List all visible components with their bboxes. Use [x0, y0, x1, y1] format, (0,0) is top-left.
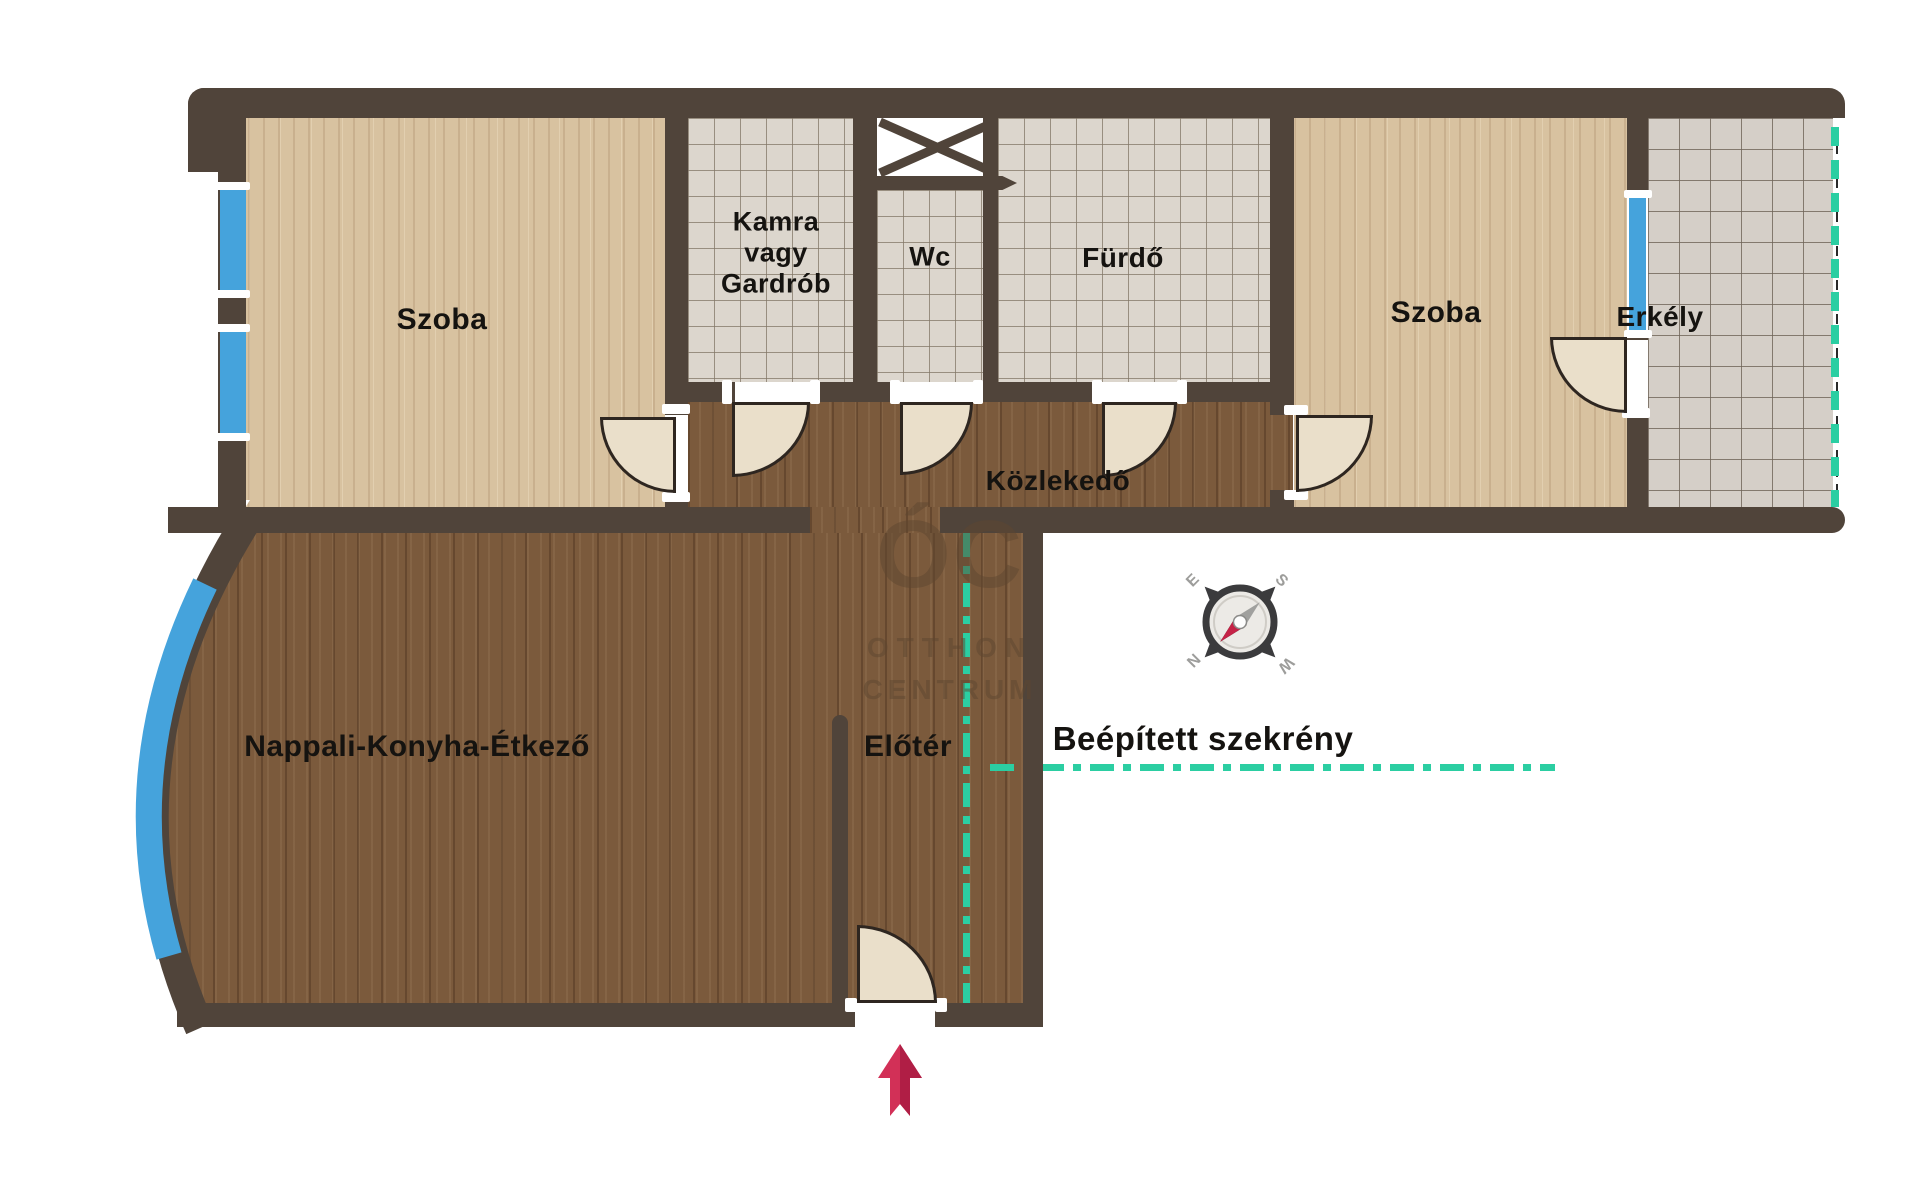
wall-left — [218, 118, 246, 510]
door-jamb — [722, 380, 732, 404]
erkely-railing — [1831, 127, 1839, 507]
window-sill — [214, 433, 250, 441]
window-sill — [214, 290, 250, 298]
label-kozlekedo: Közlekedő — [986, 465, 1131, 497]
wall-furdo-szobaR — [1270, 118, 1294, 415]
door-jamb — [1284, 405, 1308, 415]
wall-nappali-eloter — [832, 715, 848, 1003]
wall-main-right — [940, 507, 1845, 533]
compass-n: N — [1184, 651, 1204, 671]
label-szoba-right: Szoba — [1391, 296, 1482, 330]
window-sill — [1624, 190, 1652, 198]
door-jamb — [845, 998, 857, 1012]
wall-top — [188, 88, 1845, 118]
wall-hall-b — [810, 382, 900, 402]
curved-wall — [40, 480, 300, 1060]
shaft-bar — [855, 176, 1017, 190]
label-furdo: Fürdő — [1082, 242, 1164, 274]
label-kamra-line3: Gardrób — [721, 269, 831, 299]
wall-bottom-a — [177, 1003, 855, 1027]
wall-hall-c — [975, 382, 1102, 402]
door-jamb — [810, 380, 820, 404]
wall-hall-d — [1177, 382, 1294, 402]
watermark-centrum: CENTRUM — [863, 674, 1038, 706]
label-wc: Wc — [909, 242, 951, 273]
wall-szobaR-erkely-bottom — [1627, 413, 1648, 507]
wall-wc-furdo — [983, 118, 998, 382]
wardrobe-line-horizontal — [990, 764, 1555, 771]
wall-kamra-wc — [853, 118, 877, 382]
compass-icon: S N E W — [1175, 557, 1305, 687]
watermark-otthon: OTTHON — [867, 632, 1033, 664]
wall-main-left — [168, 507, 810, 533]
label-erkely: Erkély — [1616, 301, 1703, 333]
room-wc-floor — [877, 190, 983, 382]
door-jamb — [662, 404, 690, 414]
wall-eloter-right — [1023, 525, 1043, 1027]
wall-bottom-b — [935, 1003, 1043, 1027]
shaft-x-icon — [877, 118, 998, 177]
label-eloter: Előtér — [864, 730, 952, 764]
door-jamb — [1092, 380, 1102, 404]
label-nappali: Nappali-Konyha-Étkező — [244, 730, 590, 764]
shaft-box — [877, 118, 998, 177]
door-jamb — [973, 380, 983, 404]
compass-e: E — [1183, 571, 1203, 591]
compass-w: W — [1274, 653, 1297, 676]
floor-plan: Szoba Kamra vagy Gardrób Wc Fürdő Szoba … — [0, 0, 1920, 1180]
wall-szobaL-kamra — [665, 118, 688, 415]
label-szoba-left: Szoba — [397, 303, 488, 337]
entrance-arrow-icon — [872, 1042, 928, 1118]
label-kamra-line1: Kamra — [733, 207, 820, 237]
door-jamb — [890, 380, 900, 404]
door-jamb — [662, 492, 690, 502]
door-jamb — [1177, 380, 1187, 404]
label-kamra: Kamra vagy Gardrób — [721, 207, 831, 300]
window-sill — [214, 324, 250, 332]
label-kamra-line2: vagy — [744, 238, 808, 268]
window-szobaL-2 — [220, 332, 246, 433]
window-szobaL-1 — [220, 190, 246, 290]
wall-szobaR-erkely-top — [1627, 118, 1648, 198]
window-sill — [214, 182, 250, 190]
watermark-logo: ÓC — [876, 500, 1024, 610]
label-built-in-wardrobe: Beépített szekrény — [1053, 720, 1354, 758]
